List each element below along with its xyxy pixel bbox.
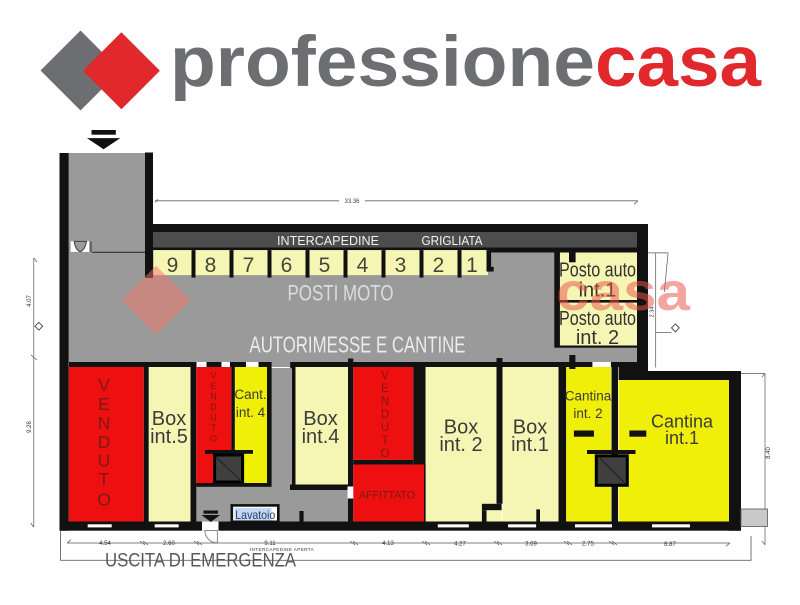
svg-text:2: 2 <box>433 254 445 277</box>
svg-text:D: D <box>98 432 111 452</box>
svg-text:POSTI MOTO: POSTI MOTO <box>288 281 394 306</box>
svg-text:9: 9 <box>167 254 179 277</box>
svg-text:D: D <box>381 409 389 421</box>
svg-text:AFFITTATO: AFFITTATO <box>359 490 415 502</box>
svg-text:N: N <box>381 396 389 408</box>
svg-text:9.26: 9.26 <box>27 421 33 433</box>
svg-text:2.75: 2.75 <box>582 542 594 548</box>
svg-text:6: 6 <box>281 254 293 277</box>
svg-text:V: V <box>98 375 110 395</box>
svg-text:33.36: 33.36 <box>344 199 360 205</box>
svg-text:int. 2: int. 2 <box>576 327 619 349</box>
svg-text:3.69: 3.69 <box>525 542 537 548</box>
svg-text:1: 1 <box>466 254 478 277</box>
svg-text:8.40: 8.40 <box>766 447 772 459</box>
svg-text:INTERCAPEDINE: INTERCAPEDINE <box>277 233 379 248</box>
svg-text:T: T <box>381 435 388 447</box>
svg-text:E: E <box>210 381 216 391</box>
svg-text:E: E <box>381 383 389 395</box>
svg-text:N: N <box>98 413 111 433</box>
svg-text:int. 4: int. 4 <box>236 405 266 420</box>
svg-text:4.13: 4.13 <box>382 541 394 547</box>
svg-text:4.27: 4.27 <box>454 542 466 548</box>
svg-text:int.1: int.1 <box>511 434 549 456</box>
svg-text:2.60: 2.60 <box>163 541 175 547</box>
svg-text:N: N <box>210 392 217 402</box>
svg-text:AUTORIMESSE E CANTINE: AUTORIMESSE E CANTINE <box>250 332 466 358</box>
svg-text:U: U <box>381 422 389 434</box>
svg-text:casa: casa <box>556 262 691 322</box>
svg-text:int.1: int.1 <box>665 428 699 448</box>
svg-text:O: O <box>381 448 390 460</box>
svg-text:5: 5 <box>319 254 331 277</box>
svg-text:Lavatoio: Lavatoio <box>235 508 275 522</box>
svg-text:casa: casa <box>595 23 762 102</box>
svg-text:4.07: 4.07 <box>27 295 33 307</box>
svg-text:Cantina: Cantina <box>565 389 612 404</box>
svg-text:GRIGLIATA: GRIGLIATA <box>422 233 483 248</box>
svg-text:T: T <box>211 423 217 433</box>
svg-text:professione: professione <box>170 23 595 102</box>
svg-text:3: 3 <box>395 254 407 277</box>
svg-text:V: V <box>210 371 216 381</box>
svg-text:int. 2: int. 2 <box>573 406 602 421</box>
svg-text:6.87: 6.87 <box>664 542 676 548</box>
svg-text:V: V <box>381 370 389 382</box>
svg-text:E: E <box>98 394 110 414</box>
svg-text:int.5: int.5 <box>150 426 188 448</box>
svg-text:4.54: 4.54 <box>99 541 111 547</box>
svg-text:8: 8 <box>205 254 217 277</box>
svg-text:int.4: int.4 <box>302 426 340 448</box>
svg-text:7: 7 <box>243 254 255 277</box>
svg-text:D: D <box>210 402 217 412</box>
svg-text:T: T <box>99 469 110 489</box>
svg-text:U: U <box>98 451 111 471</box>
svg-text:USCITA DI EMERGENZA: USCITA DI EMERGENZA <box>105 551 296 572</box>
svg-text:O: O <box>97 490 111 510</box>
svg-text:int. 2: int. 2 <box>439 434 482 456</box>
svg-text:4: 4 <box>357 254 369 277</box>
svg-text:Cant.: Cant. <box>234 387 266 402</box>
svg-text:U: U <box>210 413 217 423</box>
svg-text:O: O <box>210 434 217 444</box>
